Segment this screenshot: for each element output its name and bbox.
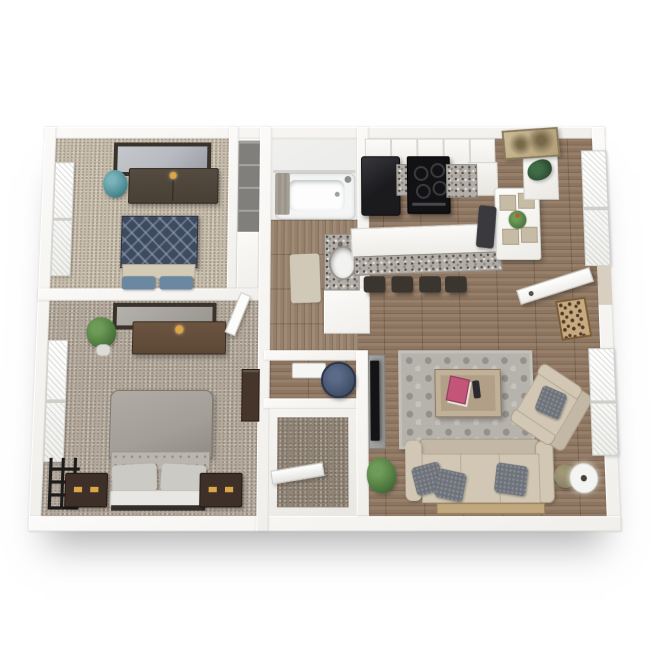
- sofa-pillow: [434, 468, 467, 503]
- wall-vanity-corner: [324, 288, 370, 333]
- counter-right: [446, 164, 478, 198]
- sink-faucet: [338, 242, 343, 247]
- bedroom2-dresser: [132, 321, 227, 354]
- wall-toiletroom-bottom: [263, 398, 368, 409]
- bed1-pillow-left: [122, 276, 156, 289]
- nightstand-right: [199, 473, 242, 508]
- gold-pull: [74, 487, 82, 492]
- livingroom-window: [588, 348, 618, 456]
- burner: [432, 181, 447, 196]
- lamp-finial: [581, 475, 587, 481]
- coffee-table: [434, 369, 501, 417]
- tub-drain: [335, 192, 340, 197]
- dining-chair-cushion: [499, 195, 516, 211]
- burner: [430, 163, 445, 178]
- kitchen-window: [581, 150, 611, 266]
- floor-lamp-shade: [569, 463, 599, 493]
- gold-pull: [225, 487, 233, 492]
- bed2-pillow-left: [112, 463, 157, 493]
- range-stove: [407, 156, 451, 213]
- nightstand-left: [64, 473, 108, 508]
- tv-screen: [370, 361, 380, 441]
- dark-dining-chair: [476, 205, 497, 249]
- gold-knob: [170, 172, 177, 179]
- wall-toiletroom-top: [264, 350, 368, 360]
- apartment-floorplan: [28, 127, 621, 531]
- entry-threshold: [597, 266, 612, 305]
- tv-remote: [472, 380, 481, 399]
- bedroom2-bed: [107, 390, 211, 512]
- kitchen-wall-art: [502, 127, 561, 160]
- bar-stool: [364, 276, 386, 292]
- bed2-frame-edge: [111, 505, 205, 510]
- gold-pull: [209, 487, 217, 492]
- livingroom-plant: [367, 458, 397, 494]
- burner: [416, 184, 431, 199]
- floorplan-render: [0, 0, 650, 650]
- toilet-bowl: [321, 362, 356, 399]
- wall-outer-bottom: [28, 516, 621, 531]
- bedroom2-wall-shelf: [241, 369, 260, 422]
- centerpiece-flower: [515, 214, 519, 218]
- bedroom1-bed: [120, 216, 197, 291]
- shower-curtain: [275, 173, 290, 215]
- oven-handle: [412, 203, 445, 206]
- shower-head: [345, 176, 352, 183]
- island-bar-counter: [354, 251, 503, 276]
- bath-mat: [290, 253, 321, 303]
- wall-closet-right: [356, 350, 369, 516]
- bar-stool: [419, 276, 441, 292]
- gold-pull: [90, 487, 98, 492]
- bedroom1-dresser: [128, 168, 219, 204]
- books-stack: [446, 375, 470, 404]
- door-handle: [528, 290, 534, 296]
- carpet-closet: [277, 417, 349, 507]
- drawer-seam: [172, 177, 174, 201]
- bedroom2-plant-pot: [96, 344, 111, 356]
- leopard-doormat: [555, 297, 592, 341]
- sofa: [405, 439, 553, 503]
- wall-nook-filler: [237, 232, 259, 289]
- bed2-duvet: [109, 390, 214, 458]
- burner: [414, 166, 429, 181]
- bar-stool: [445, 276, 467, 292]
- refrigerator: [361, 156, 401, 215]
- dining-chair-cushion: [521, 227, 538, 243]
- sofa-pillow: [494, 462, 529, 497]
- bar-stool: [391, 276, 413, 292]
- bed1-pillow-right: [159, 276, 193, 289]
- bedroom1-window: [51, 162, 75, 276]
- gold-knob: [175, 325, 183, 333]
- dining-chair-cushion: [502, 229, 519, 245]
- bed1-duvet: [120, 216, 198, 268]
- behind-sofa-console: [436, 503, 545, 514]
- bedroom1-teal-plant: [103, 170, 128, 198]
